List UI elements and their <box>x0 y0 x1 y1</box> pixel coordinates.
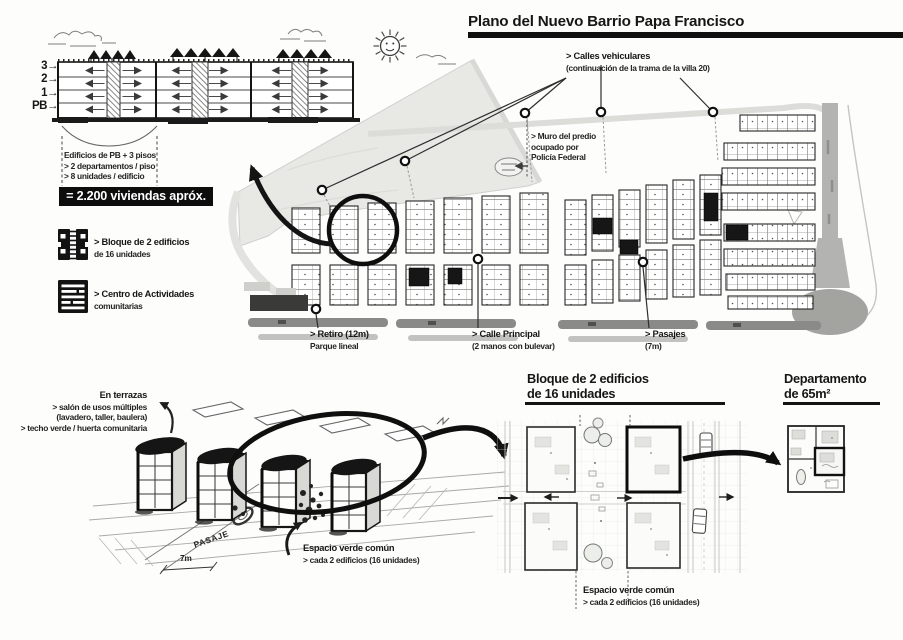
callout-calles-vehiculares: > Calles vehiculares (continuación de la… <box>566 51 710 73</box>
housing-blocks-west <box>292 193 548 305</box>
community-activities-center-icon <box>58 280 88 313</box>
block-highlight-ellipse <box>223 402 430 524</box>
legend-item-block: > Bloque de 2 edificios de 16 unidades <box>58 228 238 261</box>
green-space-note-plan: Espacio verde común > cada 2 edificios (… <box>583 585 699 607</box>
callout-pasajes: > Pasajes (7m) <box>645 329 685 351</box>
green-space-note-axon: Espacio verde común > cada 2 edificios (… <box>303 543 419 565</box>
block-plan-underline <box>525 402 725 405</box>
legend-item-center: > Centro de Actividades comunitarias <box>58 280 238 313</box>
building-block <box>134 434 186 514</box>
legend-label-line: de 16 unidades <box>94 249 189 260</box>
axonometric-blocks-sketch <box>85 388 515 588</box>
terraces-arrow <box>161 403 173 433</box>
page-title: Plano del Nuevo Barrio Papa Francisco <box>468 13 744 30</box>
housing-blocks-center <box>565 175 721 305</box>
block-plan-heading: Bloque de 2 edificios de 16 unidades <box>527 371 649 401</box>
dimension-label: 7m <box>180 553 192 564</box>
apartment-underline <box>783 402 880 405</box>
note-line: Edificios de PB + 3 pisos <box>64 150 156 161</box>
building-block <box>195 445 246 525</box>
floor-label: 2→ <box>29 73 58 86</box>
legend-label-line: > Bloque de 2 edificios <box>94 237 189 249</box>
infographic-canvas: 3→ 2→ 1→ PB→ Edificios de PB + 3 pisos >… <box>0 0 903 640</box>
note-line: > 2 departamentos / piso <box>64 161 156 172</box>
dimension-line-7m <box>160 562 217 574</box>
floor-label: PB→ <box>29 100 58 113</box>
legend-label-line: comunitarias <box>94 301 194 312</box>
floor-label: 3→ <box>29 60 58 73</box>
section-notes: Edificios de PB + 3 pisos > 2 departamen… <box>64 150 156 182</box>
housing-total-banner: = 2.200 viviendas apróx. <box>59 187 213 206</box>
legend-label-line: > Centro de Actividades <box>94 289 194 301</box>
callout-retiro: > Retiro (12m) Parque lineal <box>310 329 369 351</box>
block-floor-plan <box>497 413 792 613</box>
callout-calle-principal: > Calle Principal (2 manos con bulevar) <box>472 329 555 351</box>
callout-muro-policia: > Muro del predio ocupado por Policía Fe… <box>531 131 596 163</box>
apartment-heading: Departamento de 65m² <box>784 371 866 401</box>
note-line: > 8 unidades / edificio <box>64 171 156 182</box>
section-floor-labels: 3→ 2→ 1→ PB→ <box>29 60 58 114</box>
floor-label: 1→ <box>29 87 58 100</box>
building-block <box>329 456 380 536</box>
block-of-2-buildings-icon <box>58 228 88 261</box>
legend: > Bloque de 2 edificios de 16 unidades >… <box>58 228 238 313</box>
background-blocks <box>193 402 449 441</box>
axon-to-plan-arrow <box>423 428 504 456</box>
title-underline <box>468 32 903 38</box>
terraces-note: En terrazas > salón de usos múltiples (l… <box>1 390 147 433</box>
apartment-floor-plan <box>782 420 867 500</box>
site-plan-map <box>228 50 903 365</box>
brace-curve <box>62 126 157 146</box>
